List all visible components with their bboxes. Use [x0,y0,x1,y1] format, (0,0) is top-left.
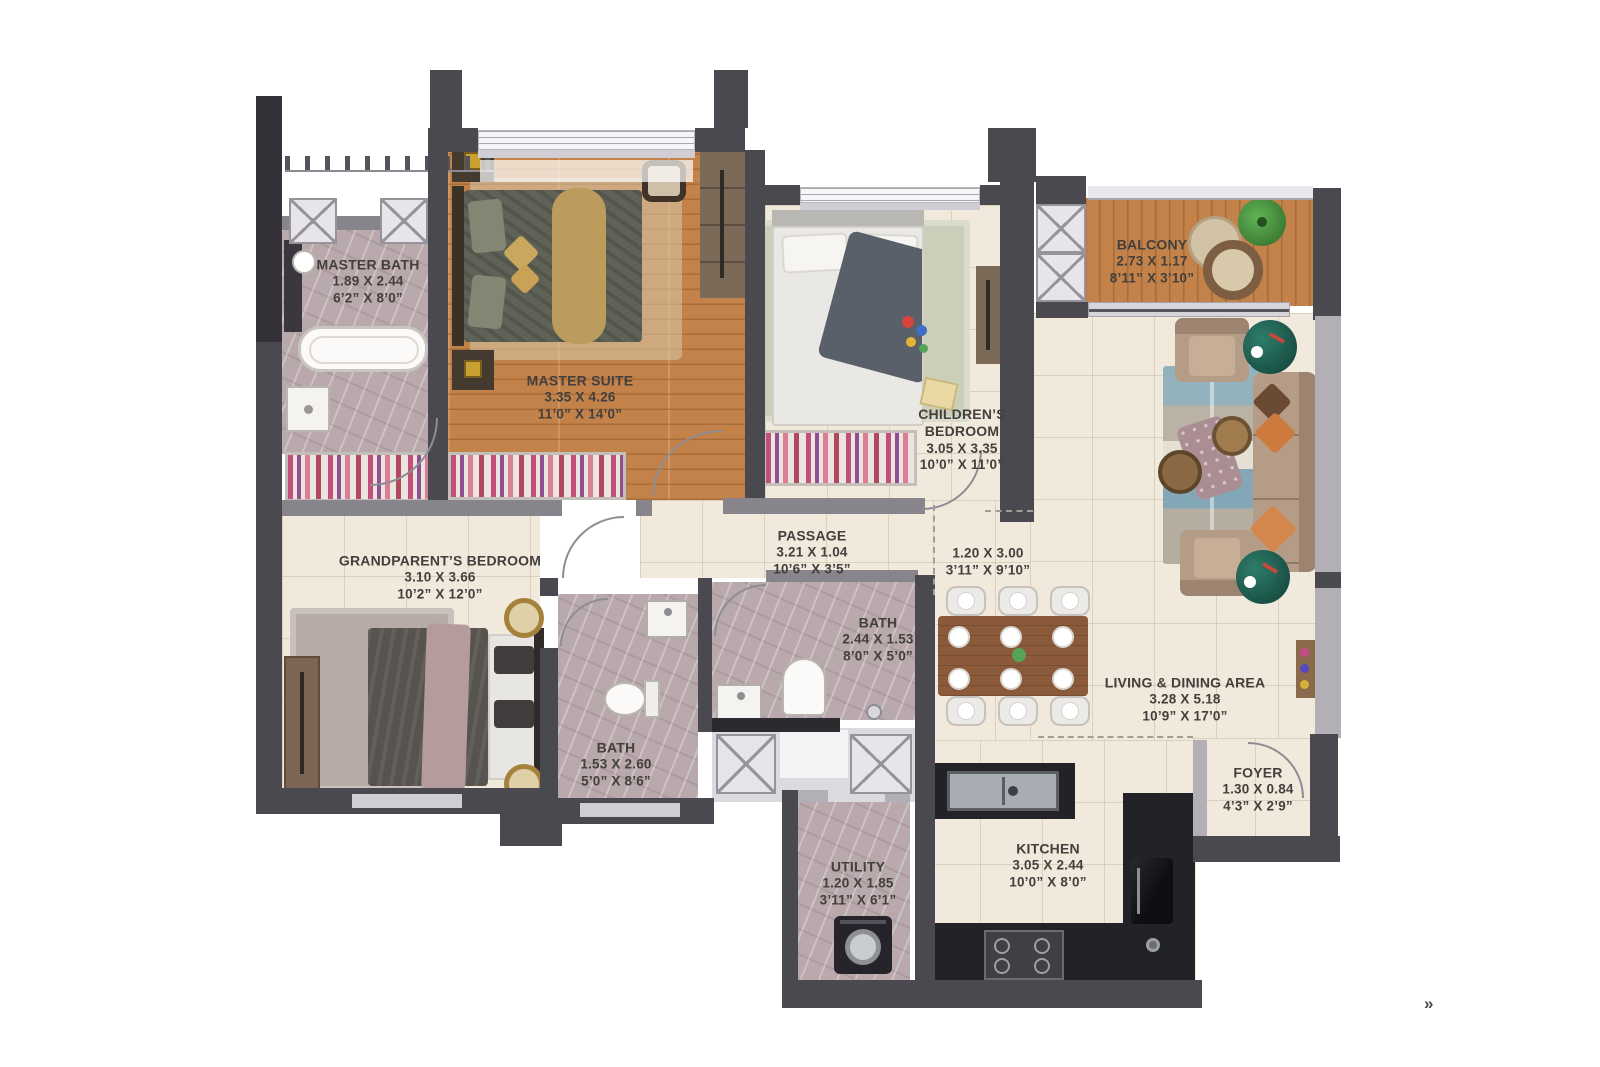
room-name: PASSAGE [732,528,892,545]
room-name: UTILITY [788,859,928,876]
room-dim-metric: 3.05 X 2.44 [968,858,1128,875]
label-childrens-bedroom: CHILDREN’S BEDROOM 3.05 X 3.35 10’0” X 1… [897,406,1027,474]
burner [994,938,1010,954]
pillow [467,274,506,329]
room-dim-imperial: 3’11” X 6’1” [788,893,928,910]
room-name: BALCONY [1062,237,1242,254]
armchair-seat [1189,336,1235,376]
room-dim-metric: 3.05 X 3.35 [897,441,1027,458]
bathtub [298,326,428,372]
shower-tray [286,386,330,432]
label-master-suite: MASTER SUITE 3.35 X 4.26 11’0” X 14’0” [480,373,680,424]
window [800,187,980,203]
room-dim-imperial: 11’0” X 14’0” [480,407,680,424]
room-dim-imperial: 10’0” X 8’0” [968,875,1128,892]
room-dim-metric: 3.28 X 5.18 [1055,692,1315,709]
wall [798,790,828,802]
plate [948,626,970,648]
door-arc-grandparents [562,516,624,578]
pillow [494,646,534,674]
centerpiece [1012,648,1026,662]
wall [1036,176,1086,204]
label-kitchen: KITCHEN 3.05 X 2.44 10’0” X 8’0” [968,841,1128,892]
wall [1193,836,1340,862]
stove [984,930,1064,980]
window-x [289,198,337,244]
label-utility: UTILITY 1.20 X 1.85 3’11” X 6’1” [788,859,928,910]
room-dim-imperial: 10’2” X 12’0” [310,587,570,604]
dining-chair [1050,586,1090,616]
wall [1315,572,1341,588]
room-name: BATH [808,615,948,632]
duct-x [716,734,776,794]
burner [1034,938,1050,954]
room-dim-imperial: 4’3” X 2’9” [1188,799,1328,816]
sink-divider [1002,777,1005,805]
room-dim-imperial: 3’11” X 9’10” [908,562,1068,579]
wall [636,500,652,516]
label-living-dining: LIVING & DINING AREA 3.28 X 5.18 10’9” X… [1055,675,1315,726]
decor-tray [1269,332,1285,343]
window [478,130,695,150]
shoe [1300,664,1309,673]
wall [256,96,282,342]
washing-machine [834,916,892,974]
label-corridor: 1.20 X 3.00 3’11” X 9’10” [908,545,1068,578]
washer-panel [840,920,886,924]
balcony-rail [1088,186,1313,200]
window-sill [580,803,680,817]
refrigerator [1131,858,1173,924]
decor-cup [1244,576,1256,588]
window-sill [352,794,462,808]
duct-shaft-notch [780,730,848,778]
pillow [467,198,506,253]
toy [902,316,914,328]
curtain [480,160,693,182]
wall [745,498,925,514]
bedside-table [504,598,544,638]
wall [698,578,712,732]
floor-plan: MASTER BATH 1.89 X 2.44 6’2” X 8’0” MAST… [0,0,1600,1067]
wall [448,128,478,152]
wall [1036,302,1088,318]
faucet [664,608,672,616]
room-dim-imperial: 10’0” X 11’0” [897,457,1027,474]
dining-chair [946,586,986,616]
plate [1052,626,1074,648]
wall [1315,296,1341,316]
window-sill [478,150,695,158]
childrens-wardrobe [763,430,917,486]
washer-drum [845,929,881,965]
plate [948,668,970,690]
wall [695,128,745,152]
kitchen-faucet [1146,938,1160,952]
faucet [1008,786,1018,796]
room-dim-imperial: 8’0” X 5’0” [808,649,948,666]
burner [994,958,1010,974]
toy [919,344,928,353]
label-balcony: BALCONY 2.73 X 1.17 8’11” X 3’10” [1062,237,1242,288]
side-table [1243,320,1297,374]
childrens-bed [772,226,924,426]
childrens-bed-headboard [772,210,924,226]
plate [1000,626,1022,648]
faucet [737,692,745,700]
pillow [494,700,534,728]
room-dim-imperial: 6’2” X 8’0” [288,291,448,308]
wall [282,500,562,516]
room-dim-metric: 1.53 X 2.60 [546,757,686,774]
sliding-door [1088,302,1290,317]
room-dim-metric: 3.10 X 3.66 [310,570,570,587]
bathtub-inner [309,336,419,364]
wardrobe-handle [300,672,304,774]
room-dim-metric: 3.21 X 1.04 [732,545,892,562]
washbasin [646,600,688,638]
shower-head [866,704,882,720]
dining-chair [998,586,1038,616]
sofa [1253,372,1317,572]
decor-tray [1262,562,1278,573]
bath-counter [712,718,840,732]
room-name: GRANDPARENT’S BEDROOM [310,553,570,570]
coffee-table [1158,450,1202,494]
louver-strip [285,156,497,172]
toy [906,337,916,347]
wall [745,150,765,500]
wall [714,70,748,128]
shoe [1300,648,1309,657]
entry-marker: » [1424,994,1433,1014]
window-sill [800,203,980,210]
plate [1000,668,1022,690]
label-passage: PASSAGE 3.21 X 1.04 10’6” X 3’5” [732,528,892,579]
label-bath-common: BATH 2.44 X 1.53 8’0” X 5’0” [808,615,948,666]
cabinet-handle [986,280,990,350]
kitchen-sink [947,771,1059,811]
room-dim-imperial: 10’9” X 17’0” [1055,709,1315,726]
armchair [1175,318,1249,382]
window-x [380,198,428,244]
master-bed-headboard [452,186,464,346]
room-name: KITCHEN [968,841,1128,858]
dining-chair [998,696,1038,726]
wall [988,128,1036,182]
wall-window-band [1315,296,1341,738]
gp-bed-drape [421,623,471,790]
room-dim-metric: 1.89 X 2.44 [288,274,448,291]
wardrobe [284,656,320,790]
boundary-dashed [1038,736,1193,738]
label-foyer: FOYER 1.30 X 0.84 4’3” X 2’9” [1188,765,1328,816]
room-dim-metric: 2.44 X 1.53 [808,632,948,649]
edge-fade [1341,80,1511,1010]
toilet-bowl [604,682,646,716]
label-grandparents-bedroom: GRANDPARENT’S BEDROOM 3.10 X 3.66 10’2” … [310,553,570,604]
washbasin [716,684,762,720]
cabinet [976,266,1000,364]
label-bath-gp: BATH 1.53 X 2.60 5’0” X 8’6” [546,740,686,791]
drain [304,405,313,414]
decor-cup [1251,346,1263,358]
room-dim-imperial: 5’0” X 8’6” [546,774,686,791]
coffee-table [1212,416,1252,456]
room-name: LIVING & DINING AREA [1055,675,1315,692]
armchair-back [1175,318,1249,334]
toy [916,325,927,336]
wall [765,185,800,205]
room-dim-metric: 3.35 X 4.26 [480,390,680,407]
pillow [1249,505,1297,553]
room-name: BATH [546,740,686,757]
room-dim-metric: 1.20 X 3.00 [908,545,1068,562]
room-name: FOYER [1188,765,1328,782]
room-dim-imperial: 10’6” X 3’5” [732,562,892,579]
wall [428,128,448,514]
wardrobe [700,150,745,298]
walkin-closet-b [448,452,626,500]
armchair-seat [1194,538,1240,578]
toilet-tank [644,680,660,718]
wardrobe-handle [720,170,724,278]
pillow [781,232,849,273]
wall [430,70,462,128]
room-name: MASTER SUITE [480,373,680,390]
room-name: MASTER BATH [288,257,448,274]
room-dim-imperial: 8’11” X 3’10” [1062,271,1242,288]
dining-chair [946,696,986,726]
room-dim-metric: 2.73 X 1.17 [1062,254,1242,271]
pillow [1254,412,1296,454]
label-master-bath: MASTER BATH 1.89 X 2.44 6’2” X 8’0” [288,257,448,308]
master-bed-runner [552,188,606,344]
toilet [782,658,826,716]
plant-center [1257,217,1267,227]
room-dim-metric: 1.20 X 1.85 [788,876,928,893]
plant [1238,198,1286,246]
fridge-handle [1137,868,1140,914]
wall [782,980,1202,1008]
side-table [1236,550,1290,604]
boundary-dashed [985,510,1033,512]
duct-x [850,734,912,794]
room-name: CHILDREN’S BEDROOM [897,406,1027,441]
wall [980,185,1002,205]
room-dim-metric: 1.30 X 0.84 [1188,782,1328,799]
burner [1034,958,1050,974]
